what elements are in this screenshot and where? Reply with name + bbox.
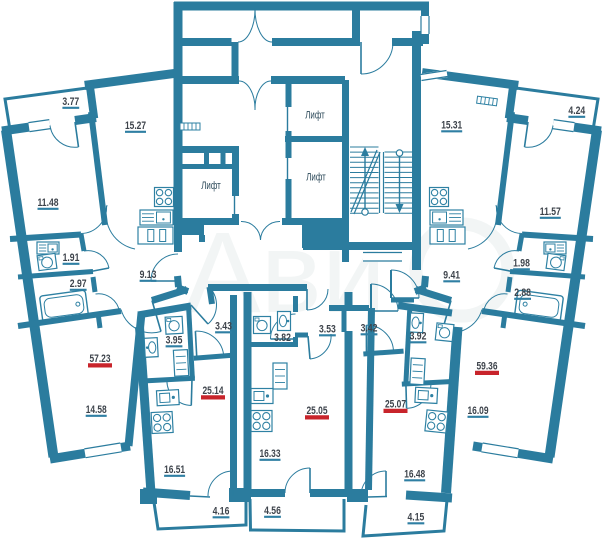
svg-text:59.36: 59.36 xyxy=(477,361,498,373)
svg-text:2.97: 2.97 xyxy=(70,278,87,290)
svg-text:3.92: 3.92 xyxy=(410,331,427,343)
svg-text:3.77: 3.77 xyxy=(62,96,79,108)
svg-text:16.33: 16.33 xyxy=(260,448,281,460)
svg-text:3.53: 3.53 xyxy=(319,324,336,336)
svg-text:2.88: 2.88 xyxy=(514,287,531,299)
svg-text:4.24: 4.24 xyxy=(568,105,585,117)
svg-text:25.05: 25.05 xyxy=(307,405,328,417)
svg-text:25.14: 25.14 xyxy=(203,385,225,397)
svg-text:16.51: 16.51 xyxy=(164,464,185,476)
svg-text:16.09: 16.09 xyxy=(468,405,489,417)
svg-text:11.48: 11.48 xyxy=(38,197,59,209)
svg-text:1.98: 1.98 xyxy=(513,258,530,270)
svg-text:Лифт: Лифт xyxy=(305,110,325,122)
svg-text:3.82: 3.82 xyxy=(274,332,291,344)
svg-text:16.48: 16.48 xyxy=(404,469,425,481)
svg-text:57.23: 57.23 xyxy=(90,353,111,365)
svg-text:4.56: 4.56 xyxy=(264,505,281,517)
svg-text:11.57: 11.57 xyxy=(540,206,561,218)
svg-text:Лифт: Лифт xyxy=(306,172,326,184)
svg-text:15.31: 15.31 xyxy=(441,120,462,132)
svg-text:3.95: 3.95 xyxy=(166,335,183,347)
svg-text:9.41: 9.41 xyxy=(443,270,460,282)
svg-text:1.91: 1.91 xyxy=(63,252,80,264)
svg-text:15.27: 15.27 xyxy=(125,120,146,132)
svg-text:3.43: 3.43 xyxy=(215,321,232,333)
svg-text:3.42: 3.42 xyxy=(361,323,378,335)
svg-text:Лифт: Лифт xyxy=(201,180,221,192)
svg-text:14.58: 14.58 xyxy=(86,404,107,416)
svg-text:9.13: 9.13 xyxy=(140,269,157,281)
svg-text:4.15: 4.15 xyxy=(408,512,425,524)
svg-text:4.16: 4.16 xyxy=(213,506,230,518)
svg-text:25.07: 25.07 xyxy=(385,399,406,411)
